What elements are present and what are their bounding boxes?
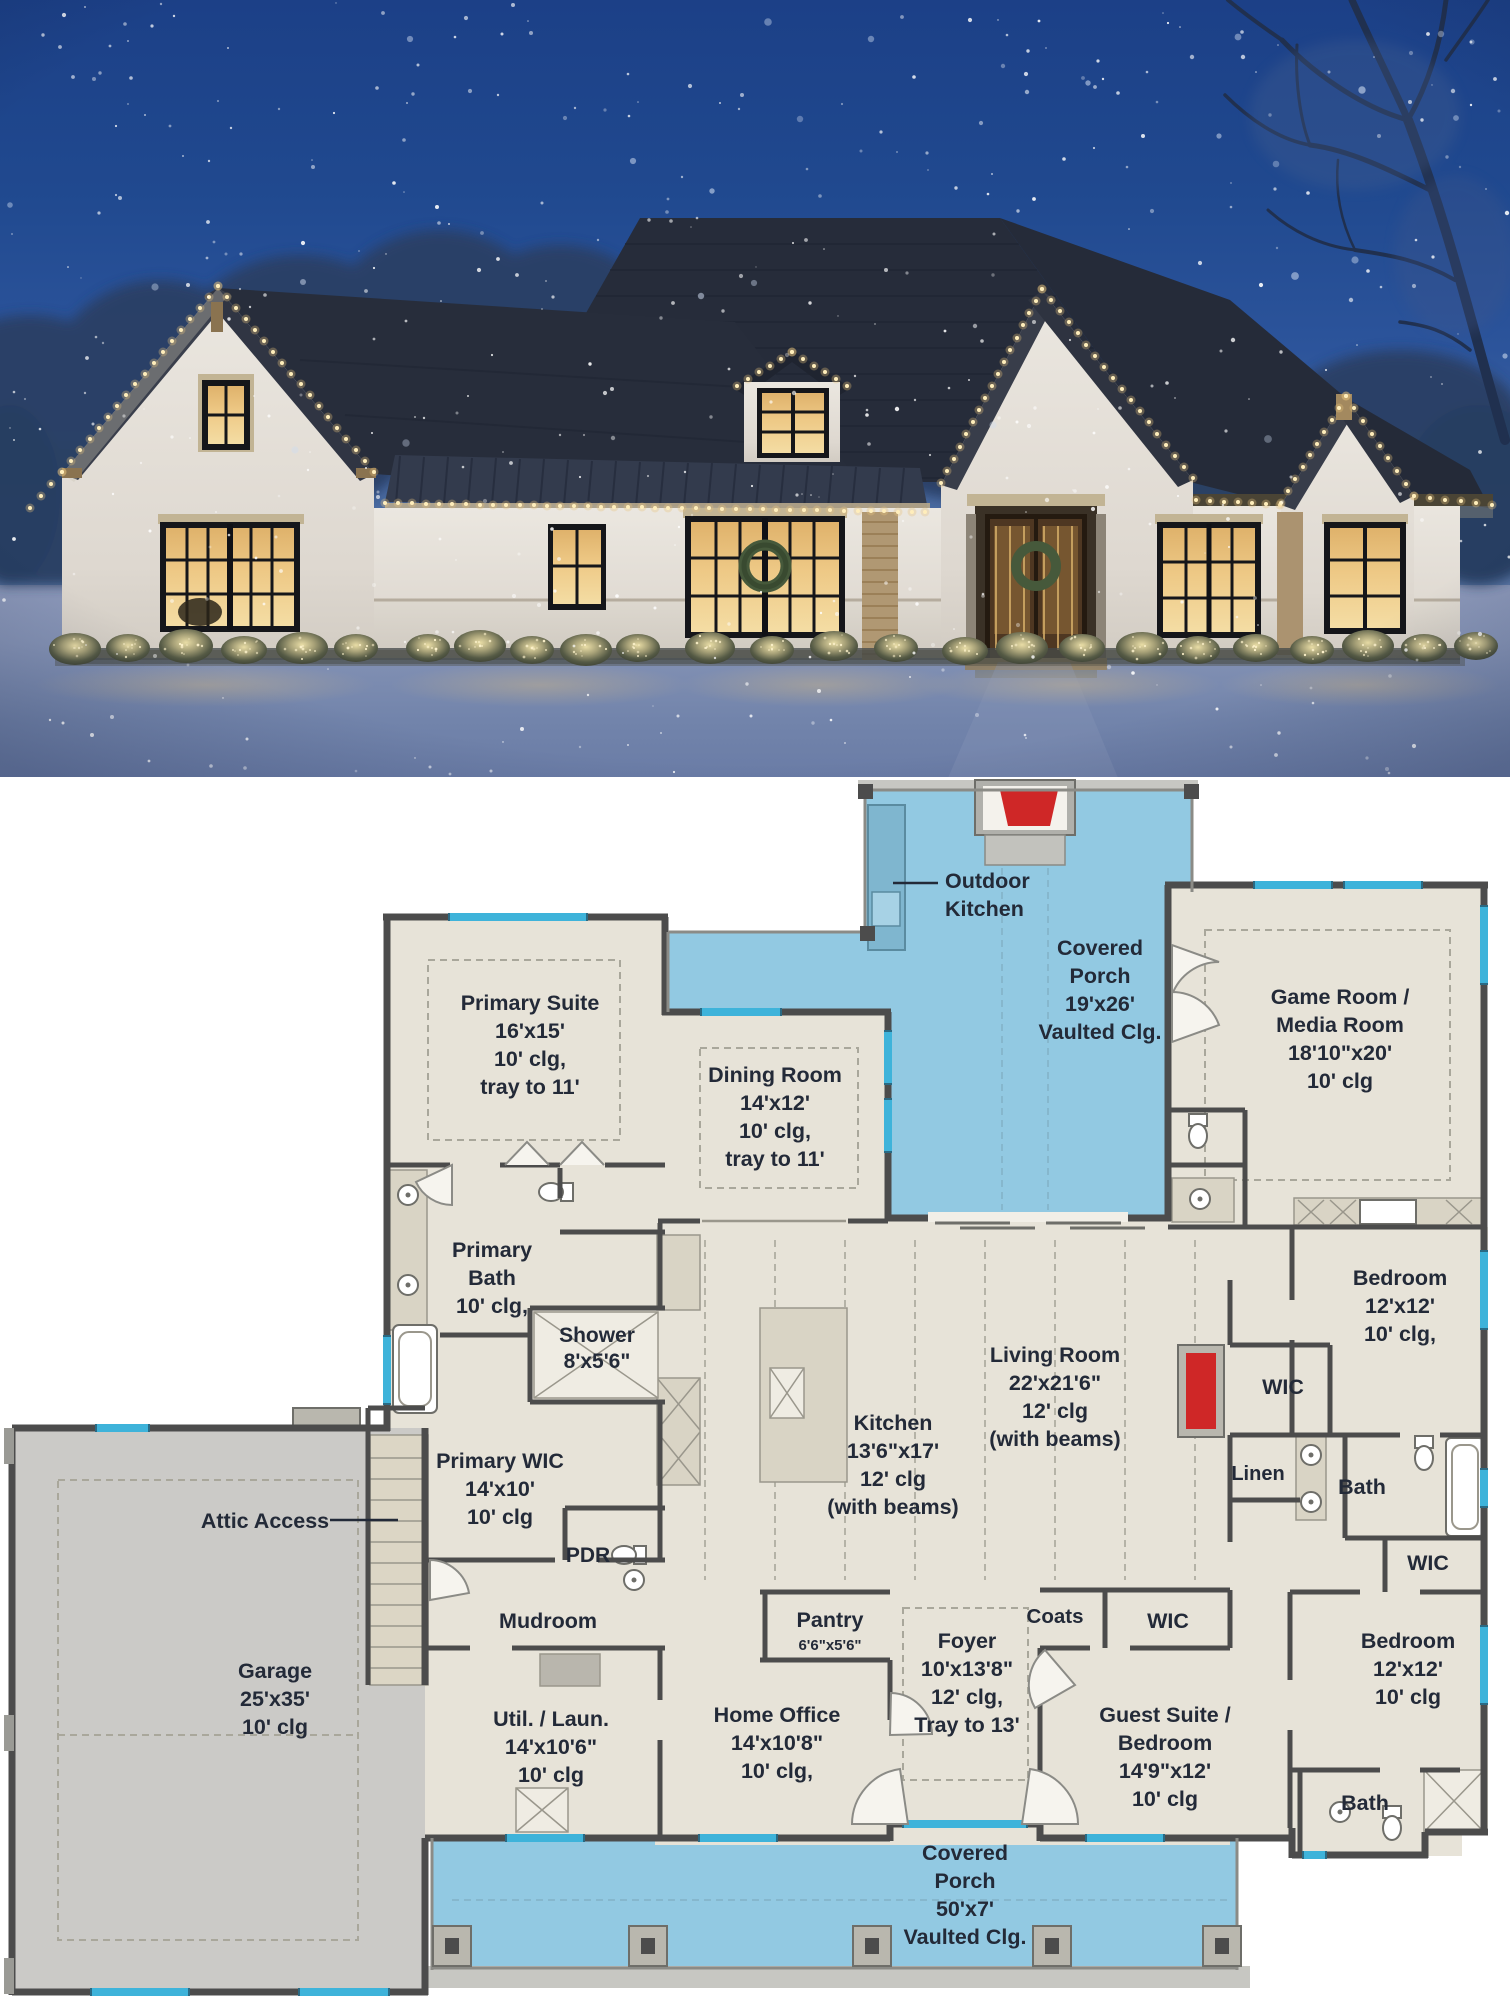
- svg-text:Tray to 13': Tray to 13': [914, 1713, 1020, 1737]
- svg-text:22'x21'6": 22'x21'6": [1009, 1371, 1101, 1395]
- svg-text:14'9"x12': 14'9"x12': [1119, 1759, 1211, 1783]
- svg-text:10' clg: 10' clg: [1307, 1069, 1373, 1093]
- svg-text:Linen: Linen: [1231, 1463, 1284, 1485]
- svg-text:Garage: Garage: [238, 1659, 312, 1683]
- svg-text:Game Room /: Game Room /: [1271, 985, 1410, 1009]
- svg-text:18'10"x20': 18'10"x20': [1288, 1041, 1392, 1065]
- svg-text:Living Room: Living Room: [990, 1343, 1120, 1367]
- svg-text:Kitchen: Kitchen: [945, 897, 1024, 921]
- svg-text:Porch: Porch: [1070, 964, 1131, 988]
- svg-text:Kitchen: Kitchen: [854, 1411, 933, 1435]
- svg-text:10'x13'8": 10'x13'8": [921, 1657, 1013, 1681]
- svg-text:10' clg,: 10' clg,: [494, 1047, 566, 1071]
- svg-text:Primary WIC: Primary WIC: [436, 1449, 564, 1473]
- svg-text:Bath: Bath: [1338, 1475, 1386, 1499]
- svg-text:Coats: Coats: [1027, 1605, 1084, 1628]
- svg-text:10' clg,: 10' clg,: [739, 1119, 811, 1143]
- svg-text:WIC: WIC: [1262, 1375, 1304, 1399]
- svg-text:14'x12': 14'x12': [740, 1091, 810, 1115]
- svg-text:PDR: PDR: [566, 1544, 610, 1567]
- svg-text:Home Office: Home Office: [714, 1703, 841, 1727]
- svg-text:16'x15': 16'x15': [495, 1019, 565, 1043]
- svg-text:14'x10'8": 14'x10'8": [731, 1731, 823, 1755]
- svg-text:(with beams): (with beams): [989, 1427, 1120, 1451]
- svg-text:10' clg,: 10' clg,: [1364, 1322, 1436, 1346]
- svg-text:10' clg: 10' clg: [518, 1763, 584, 1787]
- svg-text:12'x12': 12'x12': [1373, 1657, 1443, 1681]
- svg-text:10' clg: 10' clg: [467, 1505, 533, 1529]
- svg-text:Foyer: Foyer: [938, 1629, 997, 1653]
- svg-text:Outdoor: Outdoor: [945, 869, 1030, 893]
- svg-text:WIC: WIC: [1147, 1609, 1189, 1633]
- svg-text:Bedroom: Bedroom: [1118, 1731, 1212, 1755]
- svg-text:Bedroom: Bedroom: [1361, 1629, 1455, 1653]
- svg-text:Media Room: Media Room: [1276, 1013, 1404, 1037]
- svg-text:Shower: Shower: [559, 1324, 635, 1347]
- svg-text:Primary: Primary: [452, 1238, 532, 1262]
- svg-text:Primary Suite: Primary Suite: [461, 991, 600, 1015]
- svg-text:Covered: Covered: [1057, 936, 1143, 960]
- svg-text:12' clg: 12' clg: [860, 1467, 926, 1491]
- svg-text:10' clg: 10' clg: [1375, 1685, 1441, 1709]
- svg-text:(with beams): (with beams): [827, 1495, 958, 1519]
- svg-text:Bath: Bath: [468, 1266, 516, 1290]
- svg-text:Porch: Porch: [935, 1869, 996, 1893]
- svg-text:25'x35': 25'x35': [240, 1687, 310, 1711]
- svg-text:Covered: Covered: [922, 1841, 1008, 1865]
- svg-text:tray to 11': tray to 11': [725, 1147, 825, 1171]
- svg-text:Dining Room: Dining Room: [708, 1063, 842, 1087]
- svg-text:Attic Access: Attic Access: [201, 1509, 329, 1533]
- svg-text:50'x7': 50'x7': [936, 1897, 994, 1921]
- svg-text:14'x10': 14'x10': [465, 1477, 535, 1501]
- svg-text:Pantry: Pantry: [797, 1608, 864, 1632]
- svg-text:13'6"x17': 13'6"x17': [847, 1439, 939, 1463]
- svg-text:Util. / Laun.: Util. / Laun.: [493, 1707, 609, 1731]
- svg-text:Vaulted Clg.: Vaulted Clg.: [903, 1925, 1026, 1949]
- svg-text:12'x12': 12'x12': [1365, 1294, 1435, 1318]
- svg-text:12' clg: 12' clg: [1022, 1399, 1088, 1423]
- svg-text:Vaulted Clg.: Vaulted Clg.: [1038, 1020, 1161, 1044]
- svg-text:12' clg,: 12' clg,: [931, 1685, 1003, 1709]
- svg-text:8'x5'6": 8'x5'6": [564, 1350, 631, 1373]
- svg-text:WIC: WIC: [1407, 1551, 1449, 1575]
- svg-text:Mudroom: Mudroom: [499, 1609, 597, 1633]
- svg-text:10' clg,: 10' clg,: [741, 1759, 813, 1783]
- svg-text:Bath: Bath: [1341, 1791, 1389, 1815]
- svg-text:10' clg: 10' clg: [242, 1715, 308, 1739]
- svg-text:6'6"x5'6": 6'6"x5'6": [798, 1637, 861, 1654]
- svg-text:10' clg,: 10' clg,: [456, 1294, 528, 1318]
- svg-text:10' clg: 10' clg: [1132, 1787, 1198, 1811]
- svg-text:tray to 11': tray to 11': [480, 1075, 580, 1099]
- svg-text:Guest Suite /: Guest Suite /: [1099, 1703, 1230, 1727]
- svg-text:19'x26': 19'x26': [1065, 992, 1135, 1016]
- svg-text:Bedroom: Bedroom: [1353, 1266, 1447, 1290]
- svg-text:14'x10'6": 14'x10'6": [505, 1735, 597, 1759]
